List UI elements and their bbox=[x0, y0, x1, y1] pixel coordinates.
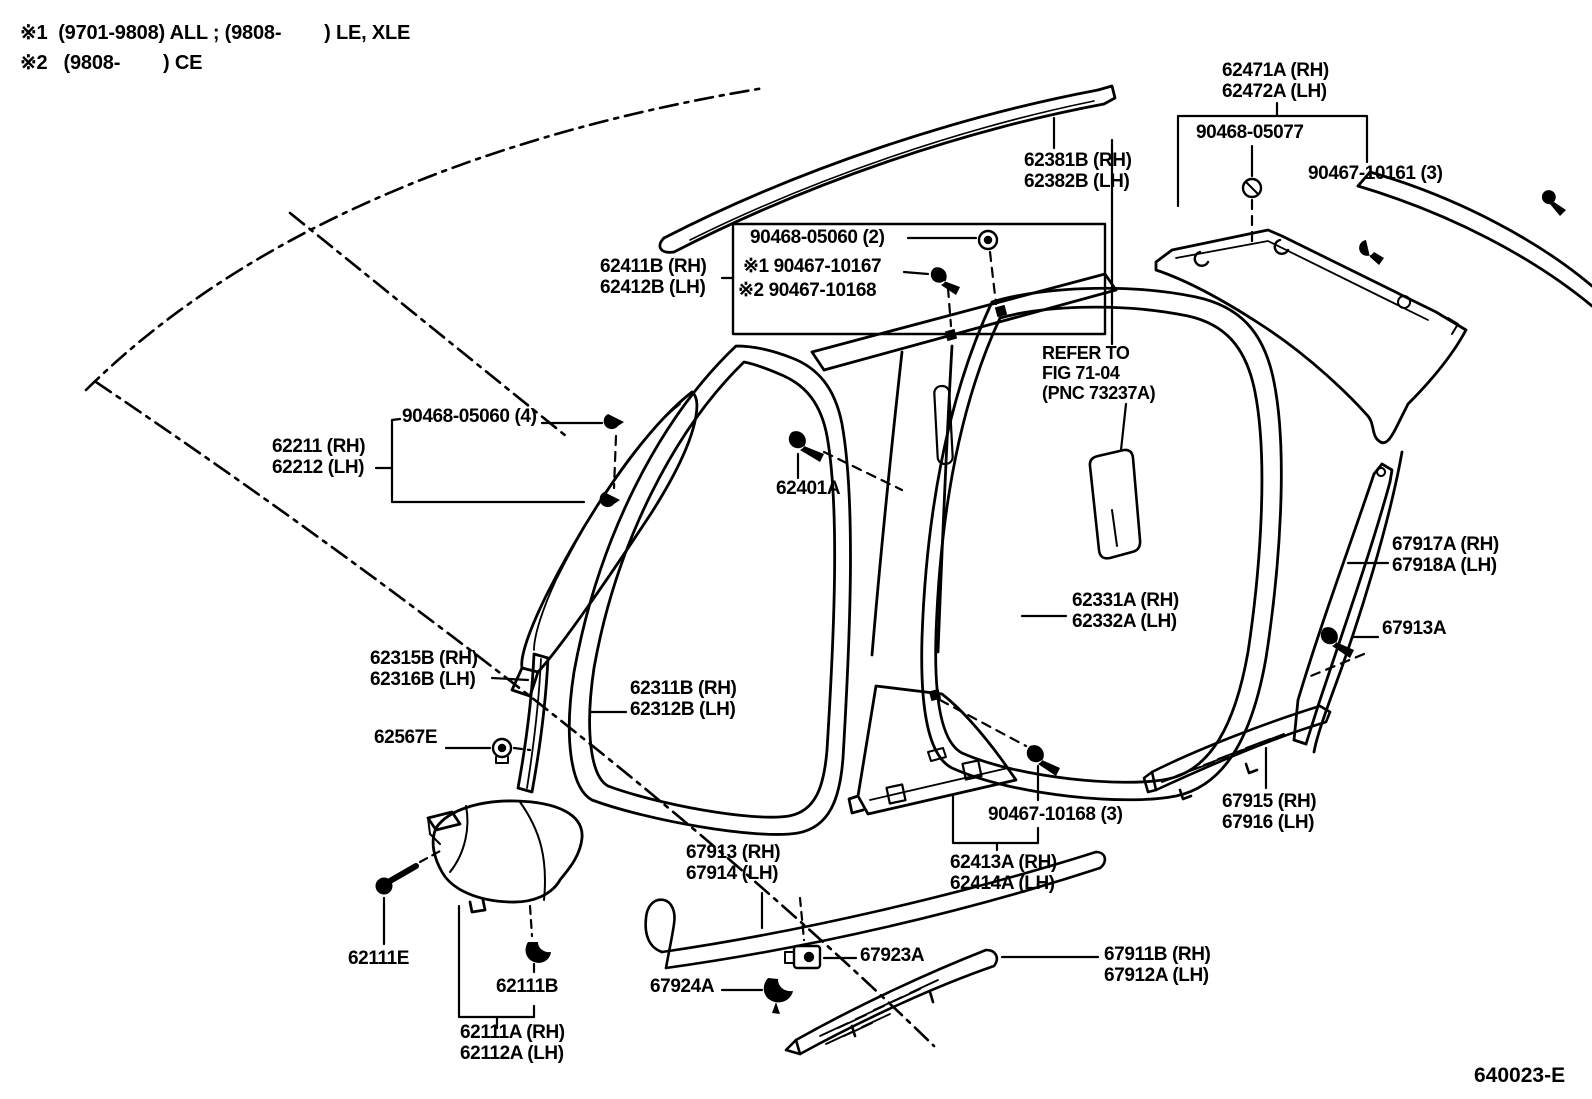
label-line: 62471A (RH) bbox=[1222, 60, 1329, 81]
label-line: 62111A (RH) bbox=[460, 1022, 565, 1043]
part-label-67913: 67913 (RH)67914 (LH) bbox=[686, 842, 780, 884]
part-label-62211: 62211 (RH)62212 (LH) bbox=[272, 436, 365, 478]
part-label-90468-05060-4: 90468-05060 (4) bbox=[402, 406, 537, 427]
label-line: ※2 90467-10168 bbox=[738, 280, 876, 301]
screw-icon bbox=[931, 267, 960, 295]
grommet-icon bbox=[979, 231, 997, 249]
part-label-62401a: 62401A bbox=[776, 478, 840, 499]
part-label-67911b: 67911B (RH)67912A (LH) bbox=[1104, 944, 1210, 986]
label-line: 67916 (LH) bbox=[1222, 812, 1316, 833]
part-label-62411b: 62411B (RH)62412B (LH) bbox=[600, 256, 706, 298]
label-line: 62472A (LH) bbox=[1222, 81, 1329, 102]
part-label-62471a: 62471A (RH)62472A (LH) bbox=[1222, 60, 1329, 102]
label-line: 67924A bbox=[650, 976, 714, 997]
label-line: 67918A (LH) bbox=[1392, 555, 1499, 576]
rear-roof-rail-art bbox=[1358, 172, 1592, 306]
part-label-62381b: 62381B (RH)62382B (LH) bbox=[1024, 150, 1132, 192]
part-label-62331a: 62331A (RH)62332A (LH) bbox=[1072, 590, 1179, 632]
part-label-62315b: 62315B (RH)62316B (LH) bbox=[370, 648, 478, 690]
part-label-90468-05077: 90468-05077 bbox=[1196, 122, 1304, 143]
grommet-icon bbox=[493, 739, 511, 763]
part-label-90467-10168-3: 90467-10168 (3) bbox=[988, 804, 1123, 825]
part-label-67923a: 67923A bbox=[860, 945, 924, 966]
rear-scuff-plate-art bbox=[1144, 706, 1330, 799]
note-applicability-1: ※1 (9701-9808) ALL ; (9808- ) LE, XLE bbox=[20, 18, 410, 48]
label-line: 62331A (RH) bbox=[1072, 590, 1179, 611]
label-line: 67914 (LH) bbox=[686, 863, 780, 884]
label-line: 62315B (RH) bbox=[370, 648, 478, 669]
label-line: 62112A (LH) bbox=[460, 1043, 565, 1064]
label-line: 62567E bbox=[374, 727, 437, 748]
label-line: REFER TO bbox=[1042, 343, 1155, 363]
label-line: 62401A bbox=[776, 478, 840, 499]
label-line: 62412B (LH) bbox=[600, 277, 706, 298]
part-label-67913a: 67913A bbox=[1382, 618, 1446, 639]
label-line: 62111E bbox=[348, 948, 409, 969]
label-line: 62411B (RH) bbox=[600, 256, 706, 277]
label-line: 67913A bbox=[1382, 618, 1446, 639]
label-line: 62212 (LH) bbox=[272, 457, 365, 478]
grommet-icon bbox=[1243, 179, 1261, 197]
bolt-icon bbox=[376, 866, 416, 894]
clip-icon bbox=[526, 942, 551, 963]
quarter-pillar-garnish-art bbox=[1294, 452, 1402, 752]
screw-icon bbox=[1027, 745, 1060, 776]
label-line: ※1 90467-10167 bbox=[743, 256, 881, 277]
label-line: 67911B (RH) bbox=[1104, 944, 1210, 965]
refer-to-note: REFER TOFIG 71-04(PNC 73237A) bbox=[1042, 343, 1155, 403]
label-line: 90467-10168 (3) bbox=[988, 804, 1123, 825]
figure-code: 640023-E bbox=[1474, 1064, 1565, 1088]
label-line: 62211 (RH) bbox=[272, 436, 365, 457]
part-label-62111a: 62111A (RH)62112A (LH) bbox=[460, 1022, 565, 1064]
label-line: 62382B (LH) bbox=[1024, 171, 1132, 192]
quarter-trim-panel-art bbox=[1156, 230, 1466, 443]
label-line: 90467-10161 (3) bbox=[1308, 163, 1443, 184]
part-label-90468-05060-2: 90468-05060 (2) bbox=[750, 227, 885, 248]
part-label-62111b: 62111B bbox=[496, 976, 558, 997]
label-line: 62332A (LH) bbox=[1072, 611, 1179, 632]
part-label-62413a: 62413A (RH)62414A (LH) bbox=[950, 852, 1057, 894]
label-line: 62312B (LH) bbox=[630, 699, 736, 720]
label-line: 67917A (RH) bbox=[1392, 534, 1499, 555]
label-line: 90468-05077 bbox=[1196, 122, 1304, 143]
part-label-90467-10167: ※1 90467-10167 bbox=[743, 256, 881, 277]
label-line: 62311B (RH) bbox=[630, 678, 736, 699]
label-line: 62381B (RH) bbox=[1024, 150, 1132, 171]
note-applicability-2: ※2 (9808- ) CE bbox=[20, 48, 202, 78]
label-line: 90468-05060 (2) bbox=[750, 227, 885, 248]
refer-part-art bbox=[1090, 450, 1140, 558]
label-line: 62111B bbox=[496, 976, 558, 997]
label-line: 67913 (RH) bbox=[686, 842, 780, 863]
screw-icon bbox=[789, 431, 824, 462]
part-label-90467-10161: 90467-10161 (3) bbox=[1308, 163, 1443, 184]
part-label-67917a: 67917A (RH)67918A (LH) bbox=[1392, 534, 1499, 576]
part-label-67915: 67915 (RH)67916 (LH) bbox=[1222, 791, 1316, 833]
part-label-62567e: 62567E bbox=[374, 727, 437, 748]
label-line: 90468-05060 (4) bbox=[402, 406, 537, 427]
windshield-side-garnish-art bbox=[518, 654, 548, 792]
label-line: 67923A bbox=[860, 945, 924, 966]
label-line: (PNC 73237A) bbox=[1042, 383, 1155, 403]
part-label-90467-10168: ※2 90467-10168 bbox=[738, 280, 876, 301]
fastener-icons bbox=[376, 179, 1354, 1014]
part-label-62311b: 62311B (RH)62312B (LH) bbox=[630, 678, 736, 720]
screw-icon bbox=[1542, 190, 1566, 216]
front-pillar-garnish-art bbox=[512, 392, 697, 696]
part-label-67924a: 67924A bbox=[650, 976, 714, 997]
label-line: 67912A (LH) bbox=[1104, 965, 1210, 986]
cowl-side-trim-art bbox=[428, 801, 582, 912]
parts-diagram-page: ※1 (9701-9808) ALL ; (9808- ) LE, XLE ※2… bbox=[0, 0, 1592, 1099]
label-line: 62413A (RH) bbox=[950, 852, 1057, 873]
part-label-62111e: 62111E bbox=[348, 948, 409, 969]
label-line: 67915 (RH) bbox=[1222, 791, 1316, 812]
label-line: 62414A (LH) bbox=[950, 873, 1057, 894]
label-line: FIG 71-04 bbox=[1042, 363, 1155, 383]
label-line: 62316B (LH) bbox=[370, 669, 478, 690]
clip-icon bbox=[785, 946, 820, 968]
clip-icon bbox=[764, 978, 793, 1014]
